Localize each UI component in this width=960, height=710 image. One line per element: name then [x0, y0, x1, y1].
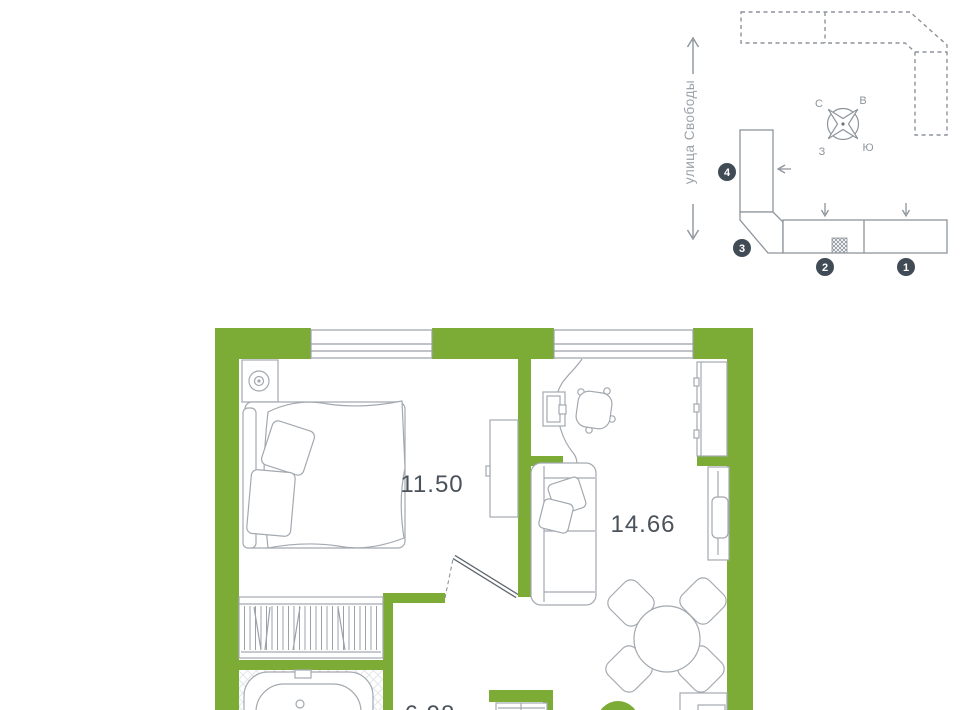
stove [680, 693, 727, 710]
kitchen-cabinet [496, 703, 547, 710]
badge-4-label: 4 [724, 167, 731, 179]
tv-icon [712, 497, 728, 538]
dining-group [602, 574, 730, 696]
wall-top-segment-2 [432, 328, 554, 359]
site-plan: улица Свободы 4 3 2 1 [660, 0, 960, 290]
room-area-living: 14.66 [610, 511, 675, 538]
arrow-down-icon [688, 204, 699, 239]
sofa-pillow [538, 498, 574, 534]
compass-n: С [815, 98, 823, 110]
badge-3-label: 3 [739, 243, 745, 255]
bathroom-fixtures [244, 670, 373, 710]
arrow-up-icon [688, 38, 699, 74]
window-bedroom [311, 330, 432, 358]
plan-badge [597, 701, 639, 710]
compass-e: В [859, 95, 866, 107]
badge-2-label: 2 [822, 262, 828, 274]
window-living-room [554, 330, 693, 358]
wardrobe [239, 597, 383, 658]
door-leaf-inner [454, 557, 517, 596]
dashed-building-outline [741, 12, 947, 135]
bed [243, 401, 405, 548]
building-2-1-outline [783, 220, 947, 253]
compass-rose-icon: С В З Ю [815, 95, 874, 158]
wall-top-segment-1 [215, 328, 311, 359]
wall-left [215, 328, 239, 710]
entrance-arrow-down-icon [822, 203, 829, 216]
compass-w: З [819, 146, 826, 158]
nightstand [242, 360, 278, 402]
room-area-hallway: 6.98 [405, 701, 456, 710]
pillow [246, 469, 295, 537]
desk-chair [575, 388, 616, 433]
entrance-arrows-down [822, 203, 910, 216]
building-4-outline [740, 130, 773, 212]
street-label: улица Свободы [682, 80, 697, 184]
dining-table [634, 606, 700, 672]
sofa [531, 463, 596, 605]
wall-wardrobe-bath-divider [239, 660, 383, 670]
wall-partition-hall [383, 593, 393, 710]
bedroom-cabinet [486, 420, 518, 517]
tv-unit [708, 467, 729, 560]
bedroom-furniture [239, 360, 518, 658]
compass-s: Ю [862, 142, 873, 154]
badge-1-label: 1 [903, 262, 909, 274]
floorplan-page: улица Свободы 4 3 2 1 [0, 0, 960, 710]
bedroom-door [445, 557, 517, 598]
built-in-wardrobe [694, 362, 727, 456]
entrance-arrow-left-icon [778, 165, 791, 173]
door-swing-line [445, 559, 453, 598]
wall-niche-stub [697, 456, 727, 466]
room-area-bedroom: 11.50 [400, 471, 463, 498]
wall-interior-bedroom-living [518, 357, 531, 597]
wall-right [727, 328, 753, 710]
bathtub [244, 670, 373, 710]
current-building-marker [832, 238, 847, 253]
cabinet-handle [486, 466, 490, 476]
apartment-floor-plan: 11.50 14.66 6.98 [200, 320, 760, 710]
bathtub-faucet [295, 670, 311, 678]
entrance-arrow-down-icon [903, 203, 910, 216]
